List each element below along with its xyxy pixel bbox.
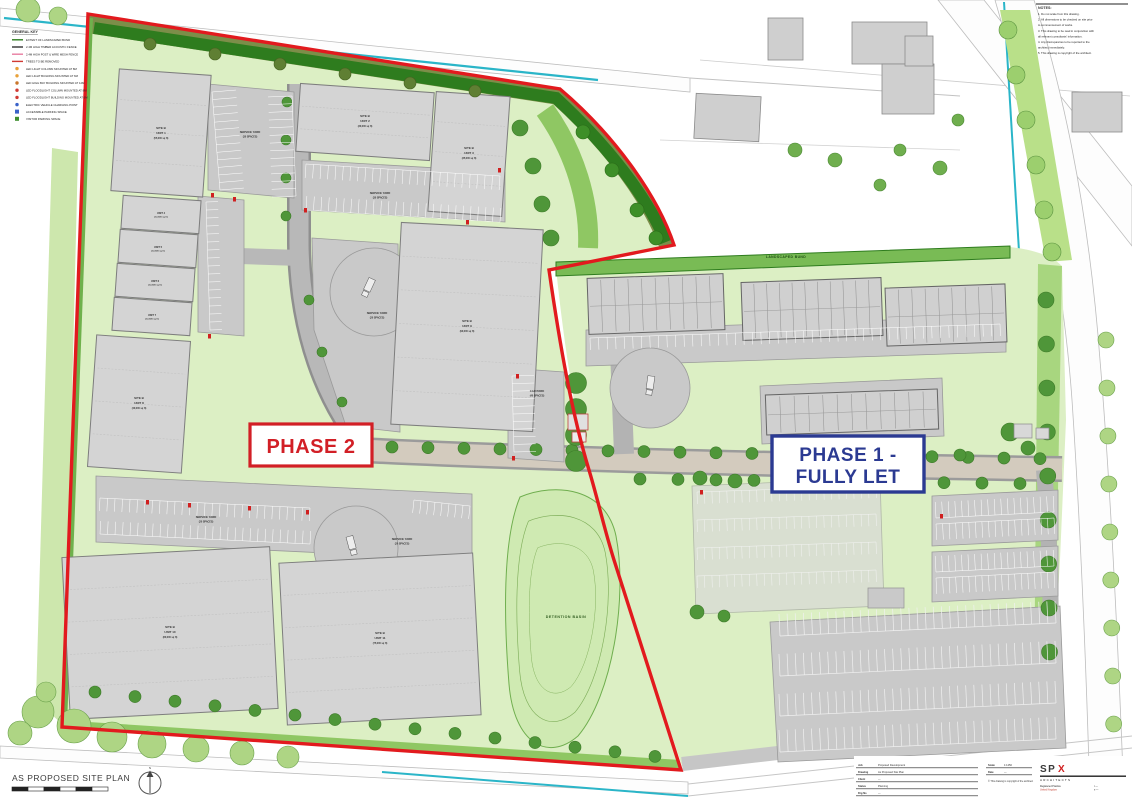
title-block-field-value: 1:1250 [1004, 763, 1012, 767]
svg-text:CAR PARK: CAR PARK [530, 389, 545, 393]
tree [1039, 380, 1055, 396]
ev-charging-marker [940, 514, 943, 519]
ev-charging-marker [233, 197, 236, 202]
svg-text:(30 SPACES): (30 SPACES) [243, 136, 258, 139]
note-line: to commencement of works. [1038, 23, 1073, 27]
svg-text:SERVICE YARD: SERVICE YARD [367, 311, 388, 315]
note-line: 3. This drawing to be read in conjunctio… [1038, 29, 1094, 33]
tree [529, 737, 541, 749]
svg-text:UNIT 6: UNIT 6 [151, 279, 160, 283]
north-letter: N [149, 766, 151, 770]
notes-title: NOTES: [1038, 6, 1052, 10]
tree [230, 741, 254, 765]
tree [1103, 572, 1119, 588]
tree [97, 722, 127, 752]
site-plan-canvas: LANDSCAPED BUND DETENTION BASIN SITE B U… [0, 0, 1132, 800]
svg-text:UNIT 8: UNIT 8 [134, 401, 144, 405]
tree [1027, 156, 1045, 174]
tree [998, 452, 1010, 464]
legend-item-label: ELECTRIC VEHICLE CHARGING POINT [26, 103, 78, 107]
title-block-contact: e — [1094, 789, 1099, 792]
ev-charging-marker [208, 334, 211, 339]
tree [1038, 292, 1054, 308]
legend-item-label: EXTENT OF LANDSCAPED BUND [26, 38, 70, 42]
tree [169, 695, 181, 707]
svg-text:SERVICE YARD: SERVICE YARD [196, 515, 217, 519]
tree [605, 163, 619, 177]
building-phase1-a [587, 274, 725, 335]
tree [828, 153, 842, 167]
tree [183, 736, 209, 762]
svg-text:(75,000 sq ft): (75,000 sq ft) [373, 642, 388, 645]
title-block-field-value: Proposed Development [878, 763, 905, 767]
architect-logo-sub: ARCHITECTS [1040, 778, 1071, 782]
title-block-field-label: Drg No [858, 791, 867, 795]
svg-text:SERVICE YARD: SERVICE YARD [392, 537, 413, 541]
tree [543, 230, 559, 246]
tree [386, 441, 398, 453]
svg-text:(12,500 sq ft): (12,500 sq ft) [148, 284, 162, 287]
tree [933, 161, 947, 175]
tree [1099, 380, 1115, 396]
svg-text:UNIT 5: UNIT 5 [154, 245, 163, 249]
title-block-field-value: — [878, 792, 881, 795]
tree [281, 135, 291, 145]
tree [534, 196, 550, 212]
bund-label: LANDSCAPED BUND [766, 255, 806, 259]
title-block-field-label: Job [858, 763, 863, 767]
tree [329, 714, 341, 726]
svg-text:UNIT 2: UNIT 2 [360, 119, 370, 123]
note-line: architect immediately. [1038, 46, 1065, 50]
tree [1040, 468, 1056, 484]
tree [938, 477, 950, 489]
tree [494, 443, 506, 455]
tree [1098, 332, 1114, 348]
tree [281, 211, 291, 221]
legend-item-label: 2.4M HIGH POST & WIRE MESH FENCE [26, 52, 78, 56]
legend-item-label: 2.4M HIGH TIMBER ACOUSTIC FENCE [26, 45, 77, 49]
tree [89, 686, 101, 698]
title-block-field-value: Planning [878, 784, 889, 788]
phase1-label-box: PHASE 1 - FULLY LET [772, 436, 924, 492]
note-line: 1. Do not scale from this drawing. [1038, 12, 1080, 16]
site-plan-page: LANDSCAPED BUND DETENTION BASIN SITE B U… [0, 0, 1132, 800]
scale-bar-segment [60, 787, 76, 791]
tree [525, 158, 541, 174]
tree [1040, 512, 1056, 528]
phase1-label-line2: FULLY LET [796, 467, 901, 488]
title-block-field-value: — [878, 778, 881, 781]
tree [1038, 336, 1054, 352]
architect-logo-x: X [1058, 764, 1065, 775]
svg-text:UNIT 10: UNIT 10 [164, 630, 176, 634]
tree [469, 85, 481, 97]
title-block-field-label: Drawing [858, 770, 869, 774]
tree [369, 718, 381, 730]
tree [576, 125, 590, 139]
tree [339, 68, 351, 80]
tree [304, 295, 314, 305]
tree [422, 442, 434, 454]
svg-text:SITE B: SITE B [360, 114, 371, 118]
ev-charging-marker [248, 506, 251, 511]
tree [894, 144, 906, 156]
tree [1017, 111, 1035, 129]
tree [144, 38, 156, 50]
ev-charging-marker [211, 193, 214, 198]
ev-charging-marker [306, 510, 309, 515]
svg-text:UNIT 4: UNIT 4 [157, 211, 166, 215]
tree [337, 397, 347, 407]
tree [649, 231, 663, 245]
ev-charging-marker [188, 503, 191, 508]
tree [1105, 668, 1121, 684]
title-block-field-label: Date [988, 770, 994, 774]
tree [954, 449, 966, 461]
tree [1104, 620, 1120, 636]
tree [16, 0, 40, 22]
tree [609, 746, 621, 758]
tree [277, 746, 299, 768]
architect-logo: SP [1040, 764, 1056, 775]
legend-item-label: ACCESSIBLE PARKING SPACE [26, 110, 67, 114]
tree [1034, 453, 1046, 465]
legend-title: GENERAL KEY [12, 30, 38, 34]
legend-item: LED FLOODLIGHT BUILDING MOUNTED AT 6M [15, 96, 88, 100]
building-phase1-c [885, 284, 1007, 346]
svg-text:SERVICE YARD: SERVICE YARD [240, 130, 261, 134]
svg-text:(35,000 sq ft): (35,000 sq ft) [462, 157, 477, 160]
ev-charging-marker [700, 490, 703, 495]
phase2-label: PHASE 2 [266, 436, 355, 458]
svg-text:UNIT 7: UNIT 7 [148, 313, 157, 317]
legend-item-label: LED FLOODLIGHT COLUMN MOUNTED AT 8M [26, 88, 87, 92]
note-line: all relevant consultants' information. [1038, 34, 1083, 38]
legend-item-label: VISITOR PARKING SPACE [26, 117, 60, 121]
svg-text:SITE B: SITE B [464, 146, 475, 150]
tree [672, 473, 684, 485]
tree [649, 750, 661, 762]
tree [1041, 556, 1057, 572]
title-block-field-label: Client [858, 777, 865, 781]
legend-item-label: LED LIGHT COLUMN MOUNTED AT 8M [26, 67, 77, 71]
svg-text:(55,000 sq ft): (55,000 sq ft) [154, 137, 169, 140]
legend-item-label: LED LIGHT BUILDING MOUNTED AT 6M [26, 74, 79, 78]
svg-text:(80,000 sq ft): (80,000 sq ft) [163, 636, 178, 639]
ev-charging-marker [498, 168, 501, 173]
tree [926, 451, 938, 463]
tree [289, 709, 301, 721]
building-phase1-d [765, 389, 938, 435]
tree [710, 447, 722, 459]
svg-text:SITE B: SITE B [156, 126, 167, 130]
tree [746, 447, 758, 459]
tree [569, 741, 581, 753]
tree [404, 77, 416, 89]
title-block-field-value: — [1004, 771, 1007, 774]
svg-text:(12,500 sq ft): (12,500 sq ft) [145, 318, 159, 321]
tree [748, 474, 760, 486]
title-block-field-label: Scale [988, 763, 995, 767]
tree [209, 48, 221, 60]
tree [449, 727, 461, 739]
tree [710, 474, 722, 486]
tree [630, 203, 644, 217]
tree [274, 58, 286, 70]
tree [36, 682, 56, 702]
scale-bar-segment [92, 787, 108, 791]
tree [952, 114, 964, 126]
note-line: 5. This drawing is copyright of the arch… [1038, 51, 1092, 55]
tree [1007, 66, 1025, 84]
svg-text:SERVICE YARD: SERVICE YARD [370, 191, 391, 195]
legend-item-label: LED HIGH BAY BUILDING MOUNTED AT 12M [26, 81, 85, 85]
tree [674, 446, 686, 458]
tree [409, 723, 421, 735]
tree [8, 721, 32, 745]
tree [693, 471, 707, 485]
tree [317, 347, 327, 357]
basin-label: DETENTION BASIN [546, 615, 586, 619]
svg-text:(20 SPACES): (20 SPACES) [395, 543, 410, 546]
legend-item: LED FLOODLIGHT COLUMN MOUNTED AT 8M [15, 88, 87, 92]
tree [249, 704, 261, 716]
tree [634, 473, 646, 485]
tree [1102, 524, 1118, 540]
tree [602, 445, 614, 457]
svg-text:SITE B: SITE B [165, 625, 176, 629]
svg-text:SITE B: SITE B [375, 631, 386, 635]
tree [1043, 243, 1061, 261]
svg-text:(40 SPACES): (40 SPACES) [530, 395, 545, 398]
svg-text:(20 SPACES): (20 SPACES) [199, 521, 214, 524]
tree [1106, 716, 1122, 732]
tree [458, 442, 470, 454]
tree [976, 477, 988, 489]
tree [281, 173, 291, 183]
svg-text:(20 SPACES): (20 SPACES) [370, 317, 385, 320]
tree [49, 7, 67, 25]
svg-text:(30 SPACES): (30 SPACES) [373, 197, 388, 200]
svg-text:(40,000 sq ft): (40,000 sq ft) [132, 407, 147, 410]
tree [282, 97, 292, 107]
svg-text:(12,500 sq ft): (12,500 sq ft) [154, 216, 168, 219]
tree [129, 691, 141, 703]
svg-text:(30,000 sq ft): (30,000 sq ft) [358, 125, 373, 128]
title-block-address: United Kingdom [1040, 789, 1057, 792]
title-block-field-value: As Proposed Site Plan [878, 770, 905, 774]
svg-text:(12,500 sq ft): (12,500 sq ft) [151, 250, 165, 253]
scale-bar [12, 787, 108, 791]
svg-text:SITE B: SITE B [134, 396, 145, 400]
scale-bar-segment [28, 787, 44, 791]
title-block: JobProposed DevelopmentDrawingAs Propose… [854, 756, 1132, 800]
ev-charging-marker [466, 220, 469, 225]
svg-text:(90,000 sq ft): (90,000 sq ft) [460, 330, 475, 333]
tree [638, 446, 650, 458]
tree [690, 605, 704, 619]
svg-text:UNIT 9: UNIT 9 [462, 324, 472, 328]
ev-charging-marker [304, 208, 307, 213]
svg-text:UNIT 1: UNIT 1 [156, 131, 166, 135]
title-block-copyright: © This drawing is copyright of the archi… [988, 780, 1033, 783]
tree [530, 444, 542, 456]
tree [999, 21, 1017, 39]
legend-item: LED HIGH BAY BUILDING MOUNTED AT 12M [15, 81, 85, 85]
tree [1021, 441, 1035, 455]
svg-text:UNIT 3: UNIT 3 [464, 151, 474, 155]
note-line: 2. All dimensions to be checked on site … [1038, 18, 1093, 22]
tree [209, 700, 221, 712]
legend-item-label: TREES TO BE REMOVED [26, 60, 59, 64]
ev-charging-marker [516, 374, 519, 379]
phase2-label-box: PHASE 2 [250, 424, 372, 466]
scale-bar-segment [12, 787, 28, 791]
ev-charging-marker [512, 456, 515, 461]
ev-charging-marker [146, 500, 149, 505]
svg-text:SITE B: SITE B [462, 319, 473, 323]
scale-bar-segment [44, 787, 60, 791]
legend-item-label: LED FLOODLIGHT BUILDING MOUNTED AT 6M [26, 96, 88, 100]
scale-bar-segment [76, 787, 92, 791]
svg-text:UNIT 11: UNIT 11 [374, 636, 385, 640]
phase1-label-line1: PHASE 1 - [799, 445, 896, 466]
drawing-title: AS PROPOSED SITE PLAN [12, 773, 130, 783]
tree [1014, 478, 1026, 490]
tree [489, 732, 501, 744]
tree [718, 610, 730, 622]
tree [874, 179, 886, 191]
title-block-field-label: Status [858, 784, 866, 788]
tree [1035, 201, 1053, 219]
note-line: 4. Any discrepancies to be reported to t… [1038, 40, 1090, 44]
tree [788, 143, 802, 157]
tree [728, 474, 742, 488]
tree [512, 120, 528, 136]
tree [1101, 476, 1117, 492]
tree [1100, 428, 1116, 444]
